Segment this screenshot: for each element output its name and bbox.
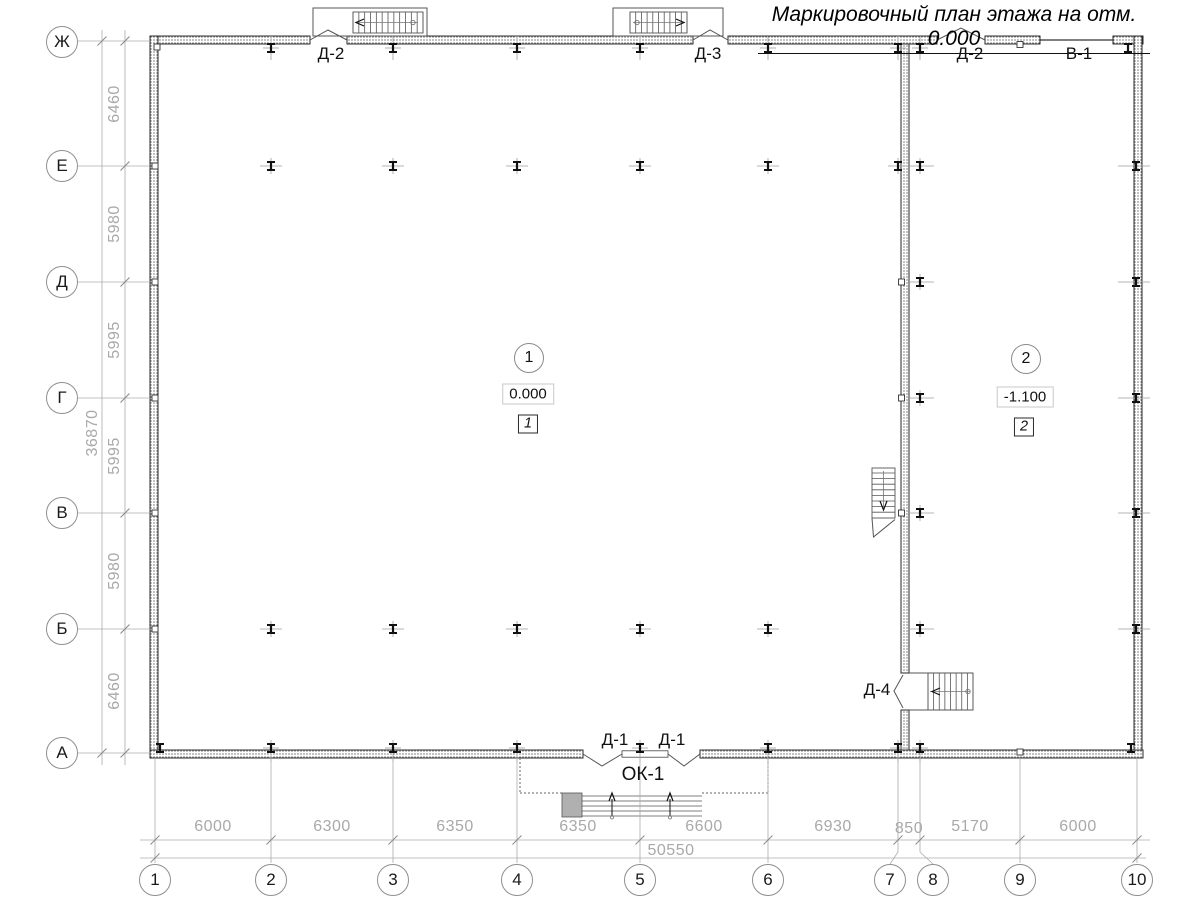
row-axis-bubble: Д — [46, 266, 78, 298]
dim-left: 5980 — [106, 205, 124, 243]
row-axis-bubble: А — [46, 737, 78, 769]
door-label-d4: Д-4 — [864, 680, 891, 700]
dim-left: 5995 — [106, 321, 124, 359]
door-label-d2-left: Д-2 — [318, 44, 345, 64]
dim-bottom: 6300 — [313, 818, 351, 836]
dim-bottom: 6000 — [194, 818, 232, 836]
room-number-bubble: 1 — [514, 343, 544, 373]
dim-bottom: 6600 — [685, 818, 723, 836]
room-number-bubble: 2 — [1011, 344, 1041, 374]
room-elevation: -1.100 — [997, 387, 1054, 408]
col-axis-bubble: 4 — [501, 864, 533, 896]
col-axis-bubble: 3 — [377, 864, 409, 896]
door-label-d2-right: Д-2 — [957, 44, 984, 64]
floor-plan-canvas: Маркировочный план этажа на отм. 0.000 Ж… — [0, 0, 1200, 900]
door-swings — [310, 28, 985, 766]
dim-left: 6460 — [106, 85, 124, 123]
dim-left-total: 36870 — [84, 410, 102, 457]
row-axis-bubble: Е — [46, 150, 78, 182]
walls — [150, 36, 1143, 758]
row-axis-bubble: Б — [46, 613, 78, 645]
room-mark: 2 — [1014, 418, 1034, 437]
row-axis-bubble: В — [46, 497, 78, 529]
room-mark: 1 — [518, 415, 538, 434]
gate-label-v1: В-1 — [1066, 44, 1092, 64]
dim-left: 5980 — [106, 552, 124, 590]
dim-bottom: 6930 — [814, 818, 852, 836]
col-axis-bubble: 7 — [874, 864, 906, 896]
floor-plan-drawing — [0, 0, 1200, 900]
window-label-ok1: ОК-1 — [622, 764, 665, 786]
row-axis-bubble: Ж — [46, 26, 78, 58]
door-label-d1-left: Д-1 — [602, 730, 629, 750]
col-axis-bubble: 8 — [917, 864, 949, 896]
col-axis-bubble: 6 — [752, 864, 784, 896]
dim-bottom: 6000 — [1059, 818, 1097, 836]
room-elevation: 0.000 — [502, 384, 554, 405]
dim-bottom: 850 — [895, 820, 923, 838]
col-axis-bubble: 9 — [1004, 864, 1036, 896]
door-label-d3: Д-3 — [695, 44, 722, 64]
dim-left: 5995 — [106, 437, 124, 475]
row-axis-bubble: Г — [46, 382, 78, 414]
col-axis-bubble: 2 — [255, 864, 287, 896]
col-axis-bubble: 10 — [1121, 864, 1153, 896]
door-label-d1-right: Д-1 — [659, 730, 686, 750]
col-axis-bubble: 1 — [139, 864, 171, 896]
col-axis-bubble: 5 — [624, 864, 656, 896]
dim-bottom: 5170 — [951, 818, 989, 836]
dim-bottom: 6350 — [559, 818, 597, 836]
dim-bottom-total: 50550 — [648, 842, 695, 860]
dim-left: 6460 — [106, 672, 124, 710]
dim-bottom: 6350 — [436, 818, 474, 836]
stairs — [313, 8, 973, 710]
